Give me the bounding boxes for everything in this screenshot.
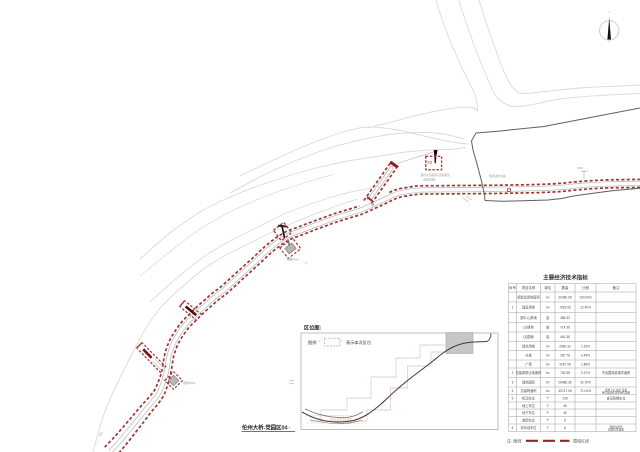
svg-text:水域: 水域 — [525, 353, 532, 358]
svg-text:个: 个 — [546, 397, 550, 401]
svg-text:个: 个 — [546, 404, 550, 408]
svg-text:m²: m² — [546, 381, 550, 385]
svg-text:(3)园地: (3)园地 — [523, 334, 534, 339]
svg-text:+: + — [196, 300, 198, 304]
svg-text:26485.36: 26485.36 — [558, 381, 572, 385]
svg-text:总建筑物占地面积: 总建筑物占地面积 — [516, 370, 542, 375]
svg-text:196: 196 — [562, 397, 568, 401]
svg-text:区位图:: 区位图: — [304, 324, 322, 332]
svg-text:m²: m² — [546, 362, 550, 366]
svg-text:序号: 序号 — [509, 285, 516, 290]
svg-text:2660.32: 2660.32 — [559, 344, 571, 348]
svg-text:现状进村大路: 现状进村大路 — [489, 174, 506, 178]
svg-text:规划总用地面积: 规划总用地面积 — [517, 294, 540, 299]
svg-text:3500: 3500 — [577, 166, 583, 170]
svg-text:现状水泥路面与园路衔接: 现状水泥路面与园路衔接 — [421, 173, 451, 177]
svg-text:#2: #2 — [427, 160, 432, 165]
svg-text:项目名称: 项目名称 — [522, 285, 536, 290]
svg-text:“: “ — [319, 339, 321, 344]
svg-text:1:500: 1:500 — [284, 426, 291, 430]
svg-text:m²: m² — [546, 354, 550, 358]
svg-text:单位: 单位 — [544, 285, 551, 290]
svg-text:40747.08: 40747.08 — [558, 389, 572, 393]
svg-text:个: 个 — [546, 426, 550, 430]
svg-text:(2)耕地: (2)耕地 — [523, 325, 534, 330]
svg-text:0.45%: 0.45% — [581, 354, 590, 358]
svg-text:个: 个 — [546, 419, 550, 423]
svg-text:机动车位: 机动车位 — [522, 396, 536, 401]
svg-text:1.29%: 1.29% — [581, 344, 590, 348]
svg-text:总建筑面积: 总建筑面积 — [521, 388, 538, 393]
svg-text:广场: 广场 — [525, 361, 531, 366]
svg-text:4: 4 — [512, 389, 514, 393]
svg-text:建设用地: 建设用地 — [522, 305, 536, 310]
svg-text:亩: 亩 — [546, 334, 549, 339]
svg-text:2: 2 — [512, 371, 514, 375]
svg-text:”: ” — [342, 339, 344, 344]
svg-text:绿地面积: 绿地面积 — [522, 380, 536, 385]
svg-text:m²: m² — [546, 389, 550, 393]
svg-text:非机动车位: 非机动车位 — [521, 425, 538, 430]
svg-text:100.00%: 100.00% — [579, 295, 592, 299]
svg-text:1: 1 — [512, 306, 514, 310]
svg-text:0.37%: 0.37% — [581, 371, 590, 375]
svg-text:7629.06: 7629.06 — [559, 306, 571, 310]
svg-text:备注: 备注 — [613, 285, 620, 290]
svg-text:雨棚P002: 雨棚P002 — [183, 381, 196, 385]
svg-text:752.98: 752.98 — [560, 371, 570, 375]
svg-text:配建标准设置: 配建标准设置 — [608, 428, 624, 432]
svg-text:1.86%: 1.86% — [581, 362, 590, 366]
svg-text:地下车位: 地下车位 — [522, 410, 536, 415]
svg-text:3787.06: 3787.06 — [559, 362, 571, 366]
svg-text:12.40%: 12.40% — [580, 306, 591, 310]
svg-text:图例: 图例 — [308, 339, 316, 346]
svg-text:25: 25 — [148, 390, 153, 395]
svg-text:714.36: 714.36 — [560, 326, 570, 330]
svg-text:伦州大桥-党园区04: 伦州大桥-党园区04 — [242, 424, 288, 432]
svg-text:亩: 亩 — [546, 315, 549, 320]
svg-text:20380.98: 20380.98 — [558, 295, 572, 299]
svg-text:6: 6 — [512, 426, 514, 430]
svg-text:(现状道路): (现状道路) — [423, 177, 436, 181]
svg-text:围墙红线: 围墙红线 — [573, 438, 589, 444]
svg-text:8: 8 — [564, 426, 566, 430]
svg-text:注: 图例: 注: 图例 — [507, 438, 521, 444]
svg-text:主要经济技术指标: 主要经济技术指标 — [543, 274, 588, 282]
svg-text:比例: 比例 — [582, 285, 589, 290]
svg-text:6: 6 — [564, 419, 566, 423]
svg-text:表示本次区位: 表示本次区位 — [346, 339, 371, 346]
svg-text:386.32: 386.32 — [560, 316, 570, 320]
svg-text:461.36: 461.36 — [560, 335, 570, 339]
svg-text:个: 个 — [546, 411, 550, 415]
svg-text:5: 5 — [512, 397, 514, 401]
svg-text:45: 45 — [563, 404, 567, 408]
svg-text:装卸车位: 装卸车位 — [522, 418, 536, 423]
svg-text:71.04%: 71.04% — [580, 389, 591, 393]
svg-text:287.76: 287.76 — [560, 354, 570, 358]
svg-text:数量: 数量 — [562, 285, 569, 290]
svg-text:3: 3 — [512, 381, 514, 385]
svg-text:25: 25 — [303, 261, 308, 266]
svg-text:绿化用地: 绿化用地 — [522, 343, 536, 348]
svg-text:含无障碍车位: 含无障碍车位 — [606, 396, 626, 401]
svg-text:m²: m² — [546, 306, 550, 310]
svg-text:45: 45 — [563, 411, 567, 415]
svg-text:M: M — [372, 203, 375, 207]
svg-text:42.76%: 42.76% — [580, 381, 591, 385]
svg-text:其中:山林地: 其中:山林地 — [520, 315, 538, 320]
svg-text:不含围墙景观亭面积: 不含围墙景观亭面积 — [602, 370, 631, 375]
svg-text:用房及配套管理用房面积: 用房及配套管理用房面积 — [602, 391, 631, 395]
svg-text:亩: 亩 — [546, 325, 549, 330]
svg-text:地上车位: 地上车位 — [522, 403, 536, 408]
svg-text:m²: m² — [546, 344, 550, 348]
svg-text:雨棚P001: 雨棚P001 — [287, 258, 300, 262]
svg-text:m²: m² — [546, 371, 550, 375]
svg-text:m²: m² — [546, 295, 550, 299]
